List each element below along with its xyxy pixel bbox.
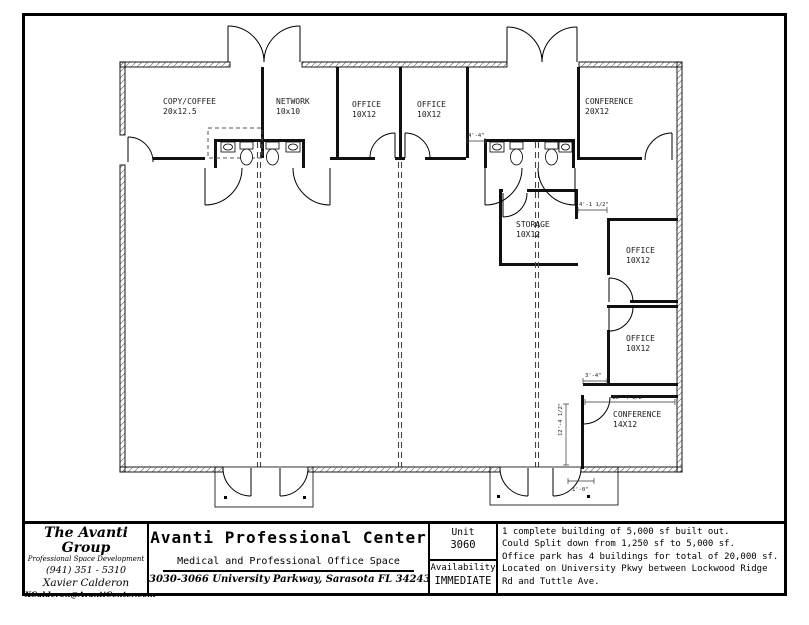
svg-text:CONFERENCE: CONFERENCE bbox=[613, 410, 661, 419]
svg-text:OFFICE: OFFICE bbox=[417, 100, 446, 109]
project-title: Avanti Professional Center bbox=[149, 528, 428, 547]
drawing-sheet: COPY/COFFEE 20x12.5 NETWORK 10x10 OFFICE… bbox=[22, 13, 787, 596]
svg-text:10X12: 10X12 bbox=[352, 110, 376, 119]
project-subtitle: Medical and Professional Office Space bbox=[149, 556, 428, 567]
company-phone: (941) 351 - 5310 bbox=[25, 565, 147, 577]
floor-plan: COPY/COFFEE 20x12.5 NETWORK 10x10 OFFICE… bbox=[25, 16, 784, 523]
room-label-network: NETWORK 10x10 bbox=[276, 97, 310, 116]
toilet-icon bbox=[545, 142, 558, 165]
project-address: 3030-3066 University Parkway, Sarasota F… bbox=[149, 574, 428, 585]
room-label-office-4: OFFICE 10X12 bbox=[626, 334, 655, 353]
entry-porches bbox=[215, 467, 618, 507]
svg-text:OFFICE: OFFICE bbox=[626, 334, 655, 343]
svg-text:20x12.5: 20x12.5 bbox=[163, 107, 197, 116]
interior-walls bbox=[153, 67, 678, 469]
dimension-text: 4'-4" bbox=[468, 133, 485, 139]
unit-cell: Unit 3060 bbox=[430, 524, 496, 559]
note-line: Located on University Pkwy between Lockw… bbox=[502, 563, 781, 588]
svg-text:10X12: 10X12 bbox=[417, 110, 441, 119]
dimension-text: 1'-0" bbox=[572, 487, 589, 493]
svg-text:10X12: 10X12 bbox=[626, 344, 650, 353]
flyer-page: { "plan": { "rooms": [ {"name": "COPY/CO… bbox=[0, 0, 809, 625]
company-email: XCalderon@AvantiCenter.com bbox=[25, 590, 147, 600]
company-name: The Avanti Group bbox=[25, 526, 147, 555]
toilet-icon bbox=[240, 142, 253, 165]
svg-text:COPY/COFFEE: COPY/COFFEE bbox=[163, 97, 216, 106]
dimension-text: 12'-4 1/2" bbox=[558, 403, 564, 436]
unit-number: 3060 bbox=[430, 538, 496, 554]
toilet-icon bbox=[266, 142, 279, 165]
notes-block: 1 complete building of 5,000 sf built ou… bbox=[498, 524, 784, 593]
svg-text:20X12: 20X12 bbox=[585, 107, 609, 116]
svg-text:OFFICE: OFFICE bbox=[352, 100, 381, 109]
sink-icon bbox=[286, 142, 300, 152]
room-label-office-3: OFFICE 10X12 bbox=[626, 246, 655, 265]
company-tagline: Professional Space Development bbox=[25, 555, 147, 564]
room-label-conference-14x12: CONFERENCE 14X12 bbox=[613, 410, 661, 429]
toilet-icon bbox=[510, 142, 523, 165]
availability-cell: Availability IMMEDIATE bbox=[430, 559, 496, 594]
dimension-text: 4'-1 1/2" bbox=[579, 202, 609, 208]
note-line: Office park has 4 buildings for total of… bbox=[502, 551, 781, 563]
demising-lines bbox=[258, 142, 539, 467]
company-block: The Avanti Group Professional Space Deve… bbox=[25, 524, 149, 593]
svg-text:10X12: 10X12 bbox=[516, 230, 540, 239]
unit-block: Unit 3060 Availability IMMEDIATE bbox=[430, 524, 498, 593]
room-label-copy-coffee: COPY/COFFEE 20x12.5 bbox=[163, 97, 216, 116]
sink-icon bbox=[490, 142, 504, 152]
dimension-text: 3'-4" bbox=[585, 373, 602, 379]
svg-text:NETWORK: NETWORK bbox=[276, 97, 310, 106]
divider-line bbox=[163, 570, 414, 572]
company-contact: Xavier Calderon bbox=[25, 577, 147, 590]
availability-label: Availability bbox=[430, 563, 496, 574]
dimensions: 4'-4" 4'-1 1/2" 3'-4" 13'-4 1/2" 12'-4 1… bbox=[467, 133, 675, 493]
project-block: Avanti Professional Center Medical and P… bbox=[149, 524, 430, 593]
svg-text:OFFICE: OFFICE bbox=[626, 246, 655, 255]
room-label-office-1: OFFICE 10X12 bbox=[352, 100, 381, 119]
floor-plan-svg: COPY/COFFEE 20x12.5 NETWORK 10x10 OFFICE… bbox=[25, 16, 784, 523]
svg-text:STORAGE: STORAGE bbox=[516, 220, 550, 229]
sink-icon bbox=[559, 142, 572, 152]
svg-text:CONFERENCE: CONFERENCE bbox=[585, 97, 633, 106]
unit-label: Unit bbox=[430, 527, 496, 538]
svg-text:10X12: 10X12 bbox=[626, 256, 650, 265]
room-label-storage: STORAGE 10X12 bbox=[516, 220, 550, 239]
availability-value: IMMEDIATE bbox=[430, 573, 496, 591]
note-line: 1 complete building of 5,000 sf built ou… bbox=[502, 526, 781, 538]
room-label-office-2: OFFICE 10X12 bbox=[417, 100, 446, 119]
restroom-fixtures bbox=[221, 142, 572, 165]
sink-icon bbox=[221, 142, 235, 152]
dimension-text: 13'-4 1/2" bbox=[612, 395, 645, 401]
svg-text:14X12: 14X12 bbox=[613, 420, 637, 429]
title-block: The Avanti Group Professional Space Deve… bbox=[25, 521, 784, 593]
svg-text:10x10: 10x10 bbox=[276, 107, 300, 116]
room-label-conference-20x12: CONFERENCE 20X12 bbox=[585, 97, 633, 116]
note-line: Could Split down from 1,250 sf to 5,000 … bbox=[502, 538, 781, 550]
